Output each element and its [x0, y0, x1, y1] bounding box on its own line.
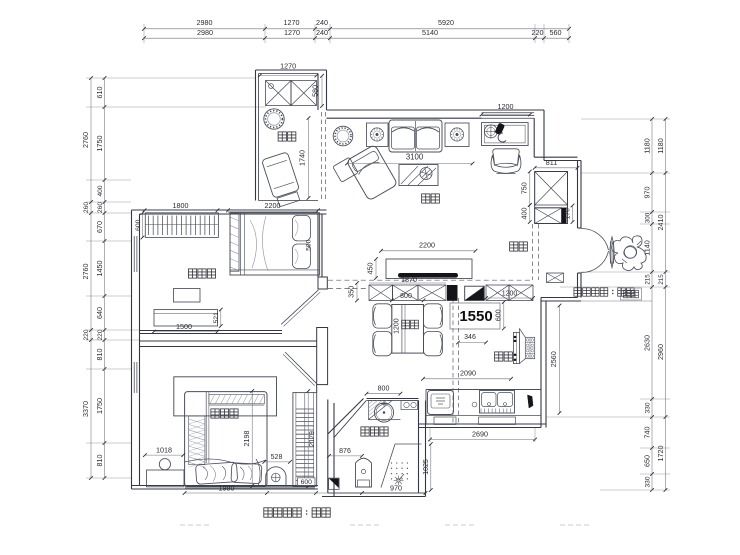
svg-text:260: 260: [83, 202, 90, 213]
svg-text:260: 260: [97, 202, 104, 213]
svg-text:970: 970: [390, 484, 402, 493]
svg-text:670: 670: [95, 221, 104, 233]
svg-text:220: 220: [97, 329, 104, 340]
svg-text:2960: 2960: [656, 344, 665, 360]
svg-text:450: 450: [366, 263, 375, 275]
svg-text:1800: 1800: [173, 201, 189, 210]
svg-text:2760: 2760: [81, 132, 90, 148]
svg-text:1450: 1450: [95, 261, 104, 277]
svg-text:2980: 2980: [197, 28, 213, 37]
svg-text:240: 240: [316, 28, 328, 37]
svg-text:1200: 1200: [498, 102, 514, 111]
svg-text:1500: 1500: [176, 322, 192, 331]
svg-text:215: 215: [658, 274, 665, 285]
svg-text:650: 650: [642, 455, 651, 467]
svg-text:1740: 1740: [298, 150, 307, 166]
svg-text:3100: 3100: [406, 153, 424, 162]
svg-text:170: 170: [565, 208, 572, 219]
svg-text:400: 400: [97, 185, 104, 196]
svg-text:1180: 1180: [642, 138, 651, 153]
svg-text:240: 240: [316, 18, 328, 27]
svg-text:580: 580: [311, 85, 320, 97]
svg-text:400: 400: [520, 208, 529, 220]
svg-text:1025: 1025: [423, 459, 430, 475]
svg-text:528: 528: [271, 454, 283, 461]
svg-text:2410: 2410: [656, 215, 665, 231]
svg-text:811: 811: [546, 158, 557, 167]
svg-text:2760: 2760: [81, 264, 90, 280]
svg-text:330: 330: [644, 476, 651, 487]
svg-text:1200: 1200: [394, 318, 401, 334]
svg-text:1270: 1270: [284, 28, 300, 37]
svg-text:1870: 1870: [401, 275, 417, 284]
svg-text:2980: 2980: [197, 18, 213, 27]
svg-text:5140: 5140: [422, 28, 438, 37]
svg-text:810: 810: [95, 349, 104, 361]
svg-text:521: 521: [213, 312, 220, 323]
svg-text:1180: 1180: [656, 138, 665, 153]
svg-text:300: 300: [644, 212, 651, 223]
svg-text:3370: 3370: [81, 401, 90, 417]
svg-text:1270: 1270: [280, 62, 296, 71]
svg-text:215: 215: [644, 274, 651, 285]
svg-text:220: 220: [532, 28, 544, 37]
svg-text:5920: 5920: [438, 18, 454, 27]
svg-text:350: 350: [347, 286, 356, 298]
svg-text:1750: 1750: [95, 398, 104, 414]
svg-text:800: 800: [400, 293, 412, 300]
svg-text:610: 610: [95, 87, 104, 99]
svg-text:2198: 2198: [242, 431, 251, 447]
svg-text:2630: 2630: [642, 335, 651, 351]
svg-text:600: 600: [135, 219, 142, 231]
svg-text:750: 750: [520, 182, 529, 194]
svg-text:876: 876: [339, 448, 351, 455]
svg-text:600: 600: [496, 309, 503, 321]
svg-text:810: 810: [95, 455, 104, 467]
svg-text:2179: 2179: [309, 431, 316, 447]
svg-text:500: 500: [306, 239, 313, 250]
svg-text:970: 970: [642, 187, 651, 199]
svg-text:1270: 1270: [284, 18, 300, 27]
svg-text:560: 560: [550, 28, 562, 37]
svg-text:2560: 2560: [549, 351, 558, 367]
svg-text:220: 220: [83, 329, 90, 340]
svg-text:600: 600: [301, 479, 313, 486]
svg-text:2090: 2090: [460, 369, 476, 378]
svg-text:330: 330: [644, 402, 651, 413]
svg-text:346: 346: [464, 334, 476, 341]
svg-text:2690: 2690: [472, 430, 488, 439]
svg-text:1750: 1750: [95, 136, 104, 152]
svg-text:640: 640: [95, 307, 104, 319]
svg-text:1550: 1550: [459, 308, 492, 325]
svg-text:1018: 1018: [156, 445, 172, 454]
svg-text:1140: 1140: [642, 240, 651, 255]
svg-text:800: 800: [378, 386, 390, 393]
svg-text:1980: 1980: [219, 484, 235, 493]
svg-text:1200: 1200: [502, 291, 518, 298]
svg-text:2200: 2200: [419, 241, 435, 250]
svg-text:740: 740: [642, 427, 651, 439]
svg-text:2200: 2200: [265, 201, 281, 210]
